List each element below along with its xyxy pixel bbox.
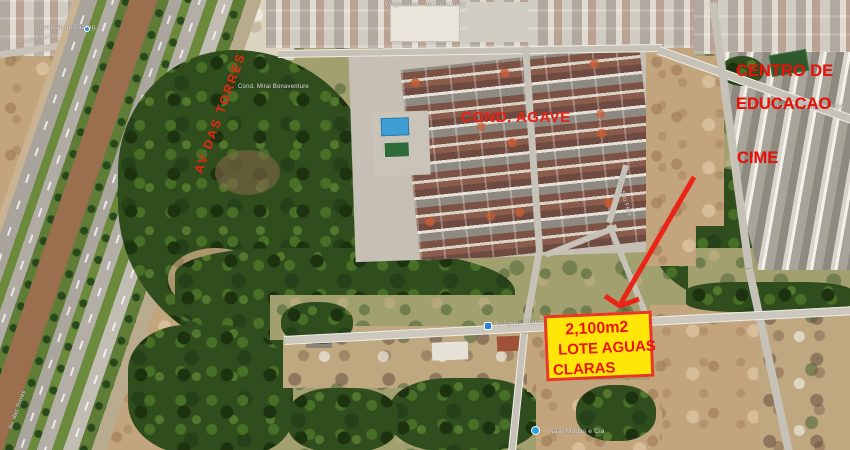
warehouse-roof (390, 5, 460, 42)
bottom-right-dirt (650, 305, 760, 450)
condo-annotation: COND. AGAVE (461, 109, 571, 126)
cime-west-dirt (666, 56, 724, 226)
school-annotation-line1: CENTRO DE (736, 62, 833, 81)
lot-name-line2: CLARAS (553, 356, 652, 379)
forest-clearing (215, 150, 280, 195)
bus-stop-icon (484, 322, 492, 330)
business-label-top: Mega Jaine - Im Vocal Baby (386, 2, 466, 8)
highlighted-lot: 2,100m2 LOTE AGUAS CLARAS (544, 311, 655, 382)
poi-dot-icon (84, 26, 90, 32)
condo-map-label: Cond. Mirai Bonaventure (238, 84, 309, 90)
poi-label-south: Naar Modas e Cia (549, 428, 605, 435)
building-roof (466, 2, 528, 42)
trees-cluster (288, 388, 398, 450)
forest-area (128, 325, 293, 450)
school-annotation-line2: EDUCACAO (736, 95, 831, 114)
sports-court (383, 141, 410, 158)
swimming-pool (381, 117, 410, 136)
lot-name-line1: LOTE AGUAS (558, 337, 651, 360)
white-roof (432, 341, 469, 360)
poi-circle-icon (531, 426, 540, 435)
satellite-map: Cond. Mirai Bonaventure Centro de Educaç… (0, 0, 850, 450)
school-annotation-line3: CIME (737, 149, 778, 168)
